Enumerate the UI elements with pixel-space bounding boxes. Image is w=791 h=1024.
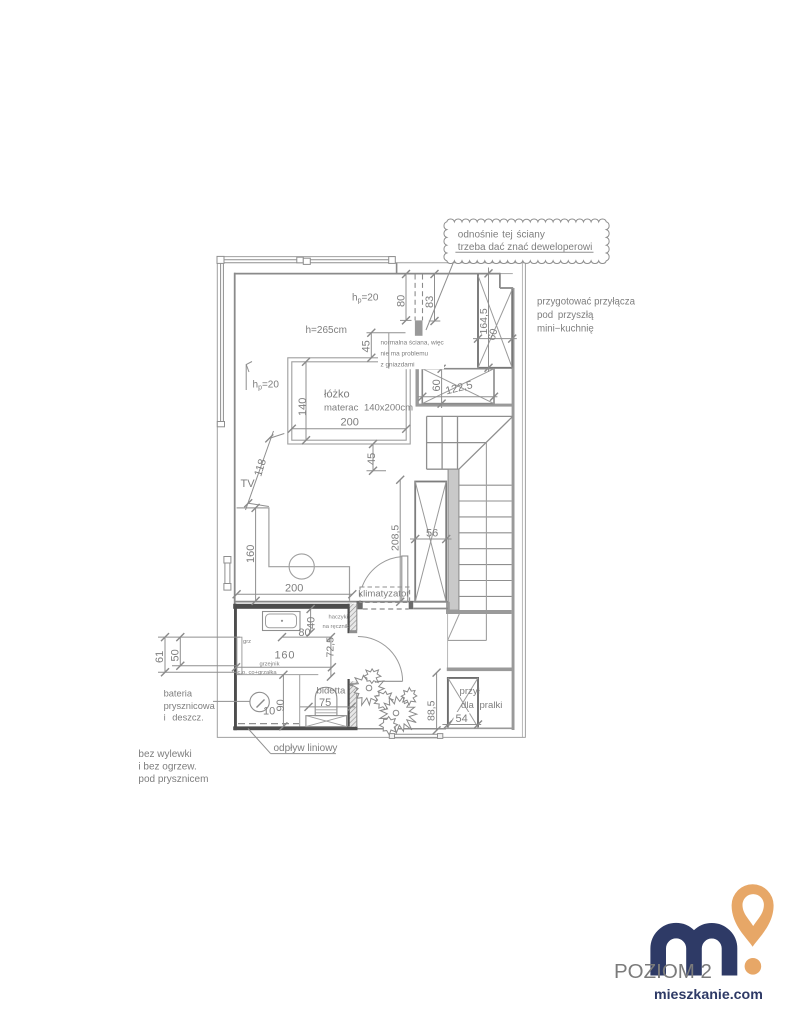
svg-text:przył: przył xyxy=(460,686,481,697)
svg-text:54: 54 xyxy=(456,713,468,725)
svg-text:haczyki: haczyki xyxy=(329,615,348,621)
svg-text:208,5: 208,5 xyxy=(390,525,402,551)
svg-text:łóżko: łóżko xyxy=(324,389,350,401)
svg-text:mieszkanie.com: mieszkanie.com xyxy=(654,987,763,1003)
svg-text:nie ma problemu: nie ma problemu xyxy=(381,351,429,358)
svg-text:75: 75 xyxy=(319,697,331,709)
svg-text:POZIOM 2: POZIOM 2 xyxy=(614,960,712,983)
svg-text:72,5: 72,5 xyxy=(325,637,337,658)
svg-text:na ręczniki: na ręczniki xyxy=(323,624,351,630)
svg-text:hp=20: hp=20 xyxy=(352,293,379,305)
svg-text:TV: TV xyxy=(241,478,256,490)
svg-text:grzejnik: grzejnik xyxy=(260,662,280,668)
svg-text:dla pralki: dla pralki xyxy=(461,700,502,711)
svg-text:pod przyszłą: pod przyszłą xyxy=(537,310,594,321)
svg-text:mini−kuchnię: mini−kuchnię xyxy=(537,324,594,335)
svg-text:prysznicowa: prysznicowa xyxy=(164,701,216,711)
svg-text:przygotować przyłącza: przygotować przyłącza xyxy=(537,297,636,308)
svg-text:45: 45 xyxy=(366,453,378,465)
svg-text:bez wylewki: bez wylewki xyxy=(138,749,191,760)
svg-text:60: 60 xyxy=(431,379,443,391)
svg-text:bateria: bateria xyxy=(164,689,193,699)
svg-text:odpływ liniowy: odpływ liniowy xyxy=(274,743,338,754)
svg-text:normalna ściana, więc: normalna ściana, więc xyxy=(381,340,445,347)
svg-text:klimatyzator: klimatyzator xyxy=(358,589,410,600)
svg-text:80: 80 xyxy=(396,295,408,307)
svg-text:61: 61 xyxy=(154,651,166,663)
svg-text:i deszcz.: i deszcz. xyxy=(164,713,204,723)
svg-text:10: 10 xyxy=(263,706,275,718)
svg-text:materac 140x200cm: materac 140x200cm xyxy=(324,403,413,414)
svg-text:bidetta: bidetta xyxy=(317,686,346,697)
svg-text:200: 200 xyxy=(341,417,359,429)
svg-text:45: 45 xyxy=(361,340,373,352)
svg-text:i bez ogrzew.: i bez ogrzew. xyxy=(138,762,196,773)
svg-text:90: 90 xyxy=(275,699,287,711)
svg-text:50: 50 xyxy=(170,649,182,661)
svg-text:hp=20: hp=20 xyxy=(253,380,280,392)
svg-text:83: 83 xyxy=(424,296,436,308)
svg-text:140: 140 xyxy=(297,398,309,416)
svg-text:c.o. co+grzałka: c.o. co+grzałka xyxy=(238,670,278,676)
svg-text:pod prysznicem: pod prysznicem xyxy=(138,774,208,785)
svg-text:88,5: 88,5 xyxy=(426,700,438,721)
svg-text:200: 200 xyxy=(285,583,303,595)
svg-text:56: 56 xyxy=(426,528,438,540)
svg-text:trzeba dać znać deweloperowi: trzeba dać znać deweloperowi xyxy=(458,242,593,253)
svg-text:z gniazdami: z gniazdami xyxy=(381,362,415,369)
svg-text:odnośnie tej ściany: odnośnie tej ściany xyxy=(458,230,545,241)
svg-text:80: 80 xyxy=(298,627,310,639)
svg-text:h=265cm: h=265cm xyxy=(306,325,347,336)
svg-text:160: 160 xyxy=(275,650,296,662)
svg-text:160: 160 xyxy=(245,545,257,563)
svg-text:grz: grz xyxy=(243,639,251,645)
